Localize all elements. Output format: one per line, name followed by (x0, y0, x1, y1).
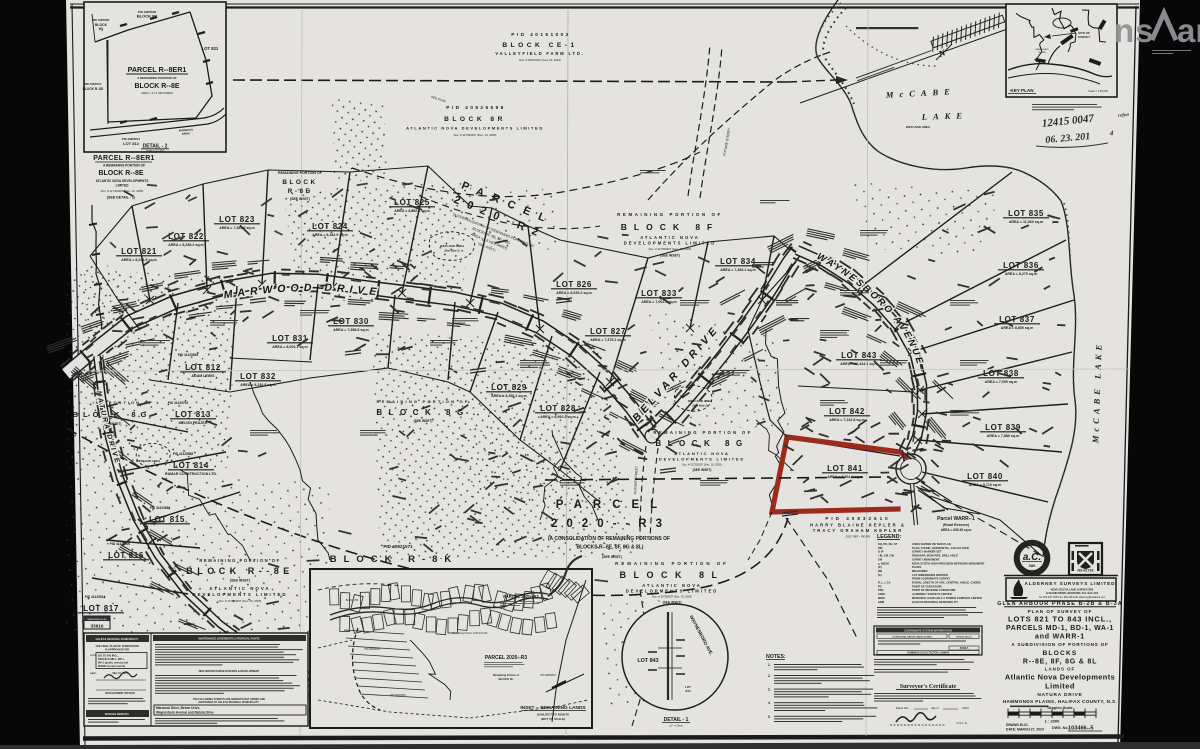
svg-text:PRC: PRC (878, 588, 884, 592)
svg-text:(See Note 2): (See Note 2) (693, 404, 708, 408)
svg-text:1.: 1. (768, 663, 771, 667)
svg-text:(SEE INSET): (SEE INSET) (290, 197, 310, 201)
svg-text:HARRY BLAINE KEPLER &: HARRY BLAINE KEPLER & (810, 523, 906, 528)
svg-text:AREA = 8,710 sq.m: AREA = 8,710 sq.m (969, 483, 1002, 487)
svg-text:EPOCH 2010.0: EPOCH 2010.0 (956, 636, 972, 638)
svg-text:Parcel WARR--1: Parcel WARR--1 (937, 516, 975, 522)
svg-text:AREA = 8,350.1 sq.m: AREA = 8,350.1 sq.m (491, 394, 527, 398)
svg-text:LOT 826: LOT 826 (556, 280, 592, 289)
svg-text:REMAINING PORTION OF: REMAINING PORTION OF (278, 171, 323, 175)
svg-text:(1'' = 10m): (1'' = 10m) (669, 724, 682, 728)
svg-text:WETLAND AREA: WETLAND AREA (136, 459, 160, 463)
svg-text:LOT 823: LOT 823 (219, 215, 255, 224)
svg-text:NEW WATERCOURSE BUFFERS & DEVE: NEW WATERCOURSE BUFFERS & DEVELOPMENT (199, 670, 260, 673)
svg-text:BLOCK R--8E: BLOCK R--8E (134, 83, 179, 90)
svg-text:Doc. # 117350297 (Dec. 19, 200: Doc. # 117350297 (Dec. 19, 2005) (652, 595, 692, 599)
svg-text:DATE:: DATE: (90, 672, 97, 675)
svg-text:ar: ar (1177, 12, 1200, 49)
svg-text:(See Note 2): (See Note 2) (445, 249, 460, 253)
svg-text:33616: 33616 (91, 624, 104, 629)
svg-text:△ NSCM: △ NSCM (877, 561, 889, 565)
svg-text:PID 40821571: PID 40821571 (383, 544, 413, 549)
svg-text:PID 41425702: PID 41425702 (168, 401, 189, 405)
svg-text:LANDS OF: LANDS OF (1045, 667, 1075, 672)
svg-text:NOVA SCOTIA LAND SURVEYORS: NOVA SCOTIA LAND SURVEYORS (1051, 588, 1094, 592)
svg-text:(SEE INSET): (SEE INSET) (693, 468, 712, 472)
svg-text:(SEE INSET): (SEE INSET) (414, 419, 433, 423)
svg-text:LOT 841: LOT 841 (827, 464, 863, 473)
svg-text:PID 41425914: PID 41425914 (85, 595, 106, 599)
svg-text:Marwood Drive, Belvar Drive,: Marwood Drive, Belvar Drive, (156, 706, 200, 710)
svg-text:SUBDIVISION FILE NO: SUBDIVISION FILE NO (87, 619, 107, 621)
svg-text:SURVEY: SURVEY (1078, 35, 1090, 39)
svg-text:AREA = 8,248.5 sq.m: AREA = 8,248.5 sq.m (121, 258, 157, 262)
svg-text:A SUBDIVISION OF PORTIONS: A SUBDIVISION OF PORTIONS OF (1011, 642, 1108, 647)
svg-text:ALDERNEY SURVEYS LIMITED: ALDERNEY SURVEYS LIMITED (1025, 581, 1116, 586)
svg-text:PARCEL R--8ER1: PARCEL R--8ER1 (128, 65, 187, 74)
svg-text:Surveyor's Certificate: Surveyor's Certificate (900, 684, 957, 690)
svg-text:RADIAL LENGTH OF ARC, CENTRAL: RADIAL LENGTH OF ARC, CENTRAL ANGLE, CHO… (912, 581, 981, 585)
svg-text:(SEE INSET): (SEE INSET) (602, 555, 622, 559)
svg-text:PLANS: PLANS (912, 565, 921, 569)
svg-text:SIGNAGE REMOVAL: SIGNAGE REMOVAL (105, 713, 130, 716)
svg-text:IRON BAR, IRON PIPE, DRILL HOL: IRON BAR, IRON PIPE, DRILL HOLE (912, 554, 958, 558)
svg-text:LOT 827: LOT 827 (590, 327, 626, 336)
svg-text:LOT 814: LOT 814 (173, 461, 209, 470)
svg-text:PC: PC (878, 584, 882, 588)
svg-text:Scale = 1:50,000: Scale = 1:50,000 (1088, 89, 1108, 93)
svg-text:PID 41425694: PID 41425694 (178, 353, 199, 357)
svg-text:PID 40161002: PID 40161002 (511, 32, 570, 38)
svg-text:LOT 821: LOT 821 (121, 247, 157, 256)
svg-text:(C): (C) (878, 573, 882, 577)
svg-text:DATE: MARCH 27, 2024: DATE: MARCH 27, 2024 (1006, 728, 1044, 732)
svg-text:AREA = 11,060 sq.m: AREA = 11,060 sq.m (1009, 220, 1043, 224)
svg-text:ADAM LEWIS: ADAM LEWIS (191, 374, 215, 378)
svg-text:AREA = 8,392.1 sq.m: AREA = 8,392.1 sq.m (394, 209, 430, 213)
svg-text:AREA = 8,850 sq.m: AREA = 8,850 sq.m (1001, 326, 1034, 330)
svg-text:LOT 821: LOT 821 (202, 46, 219, 51)
svg-text:LOT DIMENSIONS DERIVED: LOT DIMENSIONS DERIVED (912, 573, 948, 577)
svg-text:PARCELS MD-1, BD-1, WA-1: PARCELS MD-1, BD-1, WA-1 (1006, 625, 1114, 632)
svg-text:AREA = 7,375.1 sq.m: AREA = 7,375.1 sq.m (590, 338, 626, 342)
svg-text:(A CONSOLIDATION OF REMAINING: (A CONSOLIDATION OF REMAINING PORTIONS O… (548, 536, 670, 542)
svg-text:LOT 829: LOT 829 (491, 383, 527, 392)
svg-text:ATLANTIC NOVA: ATLANTIC NOVA (640, 235, 700, 240)
svg-text:SQ, PK, DH, ST: SQ, PK, DH, ST (878, 542, 898, 546)
svg-text:R, L, I, Ch: R, L, I, Ch (878, 581, 891, 585)
svg-text:REMAINING PORTION OF: REMAINING PORTION OF (653, 430, 752, 435)
svg-text:Dated this: Dated this (896, 706, 909, 710)
svg-text:PARCEL: PARCEL (556, 499, 668, 511)
svg-text:BLOCK 8G: BLOCK 8G (73, 410, 152, 419)
svg-text:BLOCK 8G: BLOCK 8G (376, 408, 469, 417)
svg-text:SURVEY MARKER SET: SURVEY MARKER SET (912, 550, 942, 554)
svg-text:Doc. # 117350297 (Dec. 19, 200: Doc. # 117350297 (Dec. 19, 2005) (219, 599, 262, 603)
svg-text:Doc. # 117350297 (Dec. 19, 200: Doc. # 117350297 (Dec. 19, 2005) (101, 189, 144, 193)
svg-text:AREA = 630.36 sq.m: AREA = 630.36 sq.m (941, 528, 972, 532)
svg-text:DEVELOPMENTS LIMITED: DEVELOPMENTS LIMITED (624, 241, 717, 246)
svg-text:PID 41425868: PID 41425868 (173, 452, 194, 456)
svg-text:Waynesboro Avenue and Natura D: Waynesboro Avenue and Natura Drive (156, 710, 214, 714)
svg-text:HAMMONDS PLAINS, HALIFAX COUN: HAMMONDS PLAINS, HALIFAX COUNTY, N.S. (1003, 699, 1117, 704)
svg-text:• IB, CM, CW: • IB, CM, CW (878, 554, 894, 558)
svg-text:AREA = 7,398.8 sq.m: AREA = 7,398.8 sq.m (333, 328, 369, 332)
svg-text:DWG. No.: DWG. No. (1052, 726, 1069, 730)
svg-text:PARCEL R--8ER1: PARCEL R--8ER1 (93, 155, 155, 162)
svg-text:LOT 840: LOT 840 (967, 472, 1003, 481)
svg-text:R-8E: R-8E (288, 188, 313, 195)
svg-text:NATURA DRIVE: NATURA DRIVE (1037, 692, 1082, 698)
svg-text:AREA = 7,483.1 sq.m: AREA = 7,483.1 sq.m (720, 268, 756, 272)
svg-text:LAKE: LAKE (921, 110, 969, 122)
svg-text:BLOCK: BLOCK (282, 179, 317, 186)
svg-text:(Road Reserve): (Road Reserve) (943, 523, 970, 527)
svg-text:REMAINING PORTION OF: REMAINING PORTION OF (377, 399, 470, 404)
svg-text:BLOCK 8R: BLOCK 8R (137, 14, 158, 19)
svg-text:AREA = 8,270 sq.m: AREA = 8,270 sq.m (1005, 272, 1038, 276)
svg-text:380: 380 (1029, 563, 1036, 568)
svg-text:ATLANTIC NOVA: ATLANTIC NOVA (209, 586, 270, 591)
svg-text:FROM COORDINATE SURVEY: FROM COORDINATE SURVEY (912, 577, 950, 581)
svg-text:BLOCK 8F: BLOCK 8F (621, 222, 720, 232)
svg-text:PARCEL 2020--R2: PARCEL 2020--R2 (503, 594, 539, 599)
svg-text:LOT 832: LOT 832 (240, 372, 276, 381)
svg-text:BLOCK 8R: BLOCK 8R (444, 116, 506, 123)
svg-text:WETLAND AREA: WETLAND AREA (440, 244, 464, 248)
svg-text:BLOCK 8G: BLOCK 8G (655, 439, 748, 448)
svg-text:4.: 4. (768, 701, 771, 705)
svg-text:Doc. # 117350297 (Dec. 19, 200: Doc. # 117350297 (Dec. 19, 2005) (649, 247, 692, 251)
svg-text:PID 40820000: PID 40820000 (364, 648, 380, 651)
svg-text:(M): (M) (878, 569, 882, 573)
svg-text:(SEE INSET): (SEE INSET) (230, 579, 250, 583)
svg-text:LOTS 821 TO 843 INCL.,: LOTS 821 TO 843 INCL., (1008, 615, 1112, 624)
svg-text:HALIFAX REGIONAL MUNICIPALITY: HALIFAX REGIONAL MUNICIPALITY (96, 638, 139, 641)
svg-text:HAMMONDS: HAMMONDS (1035, 48, 1049, 51)
svg-text:WETLAND AREA: WETLAND AREA (688, 399, 712, 403)
svg-text:AREA = 8,182.9 sq.m: AREA = 8,182.9 sq.m (312, 233, 348, 237)
svg-text:AREA = 7,002.4 sq.m: AREA = 7,002.4 sq.m (641, 300, 677, 304)
svg-text:LOT 837: LOT 837 (999, 315, 1035, 324)
svg-text:ATLANTIC NOVA: ATLANTIC NOVA (674, 451, 729, 456)
svg-text:5.: 5. (768, 715, 771, 719)
svg-text:ZONE 5: ZONE 5 (960, 647, 969, 650)
svg-text:MELVIN FRAZER: MELVIN FRAZER (179, 421, 208, 425)
svg-text:LOT 833: LOT 833 (641, 289, 677, 298)
svg-text:and WARR-1: and WARR-1 (1035, 634, 1085, 641)
svg-text:N.S.L.S.: N.S.L.S. (956, 721, 967, 725)
svg-text:SURVEY MONUMENT: SURVEY MONUMENT (912, 557, 940, 561)
svg-text:ANDL: ANDL (878, 592, 886, 596)
svg-text:AREA = 7,142.8 sq.m: AREA = 7,142.8 sq.m (829, 418, 865, 422)
svg-text:Doc. # 90322034 (June 24, 2019: Doc. # 90322034 (June 24, 2019) (519, 58, 561, 62)
svg-text:BLOCKS: BLOCKS (1042, 650, 1077, 657)
svg-text:COORDINATE SYSTEM INFORMATION: COORDINATE SYSTEM INFORMATION (904, 629, 952, 633)
svg-text:2.: 2. (768, 674, 771, 678)
svg-text:AREA = 8,230.8 sq.m: AREA = 8,230.8 sq.m (240, 383, 276, 387)
svg-text:12 BASIN DRIVE, BEDFORD, N.S.: 12 BASIN DRIVE, BEDFORD, N.S. B4A 1G2 (1046, 591, 1099, 595)
svg-text:WARR-1 (road reserve): WARR-1 (road reserve) (98, 665, 125, 668)
svg-text:HRM: HRM (878, 600, 885, 604)
svg-text:(NOT TO SCALE): (NOT TO SCALE) (541, 717, 565, 721)
svg-text:8Q: 8Q (99, 27, 104, 31)
svg-text:844: 844 (685, 689, 690, 693)
svg-text:MUNICIPAL EASE HALF A POWER CO: MUNICIPAL EASE HALF A POWER COMPANY LIMI… (912, 596, 982, 600)
svg-text:LOT 834: LOT 834 (720, 257, 756, 266)
svg-text:BLOCK CE-1: BLOCK CE-1 (502, 42, 577, 49)
svg-text:LOT 835: LOT 835 (1008, 209, 1044, 218)
svg-text:ATLANTIC NOVA: ATLANTIC NOVA (642, 583, 702, 588)
svg-text:DRIVE: DRIVE (182, 131, 190, 136)
svg-text:ALDERNEY SURVEYS LIMITED: ALDERNEY SURVEYS LIMITED (912, 592, 952, 596)
svg-text:AREA = 16,424.1 sq.m: AREA = 16,424.1 sq.m (840, 362, 878, 366)
svg-text:PID 40832610: PID 40832610 (825, 516, 890, 521)
svg-text:BLOCK 8W: BLOCK 8W (346, 599, 359, 602)
svg-text:A REMAINING PORTION OF: A REMAINING PORTION OF (137, 76, 177, 80)
svg-text:KEY PLAN: KEY PLAN (1010, 88, 1034, 93)
svg-text:IS APPROVED FOR: IS APPROVED FOR (105, 648, 129, 652)
svg-text:AREA = 4.71 HECTARES: AREA = 4.71 HECTARES (141, 91, 173, 95)
svg-text:2020--R3: 2020--R3 (551, 518, 671, 530)
svg-text:BLOCK 8L: BLOCK 8L (620, 570, 725, 580)
svg-text:LOT 812: LOT 812 (123, 141, 140, 146)
svg-text:DEVELOPMENTS LIMITED: DEVELOPMENTS LIMITED (626, 589, 719, 594)
svg-text:(P): (P) (878, 565, 882, 569)
svg-text:LINES SHOWN ON THIS PLAN: LINES SHOWN ON THIS PLAN (912, 542, 951, 546)
svg-text:Atlantic Nova Developments: Atlantic Nova Developments (1005, 673, 1115, 682)
svg-text:DEVELOPMENTS LIMITED: DEVELOPMENTS LIMITED (659, 457, 745, 462)
svg-text:POINT OF CURVATURE: POINT OF CURVATURE (912, 584, 942, 588)
svg-text:PID 40825580: PID 40825580 (93, 18, 110, 22)
svg-text:LOT 828: LOT 828 (540, 404, 576, 413)
svg-text:ns: ns (1114, 12, 1155, 49)
svg-text:BLOCK R--8D: BLOCK R--8D (83, 87, 104, 91)
svg-text:HORIZONTAL DATUM: NAD83 (CSRS): HORIZONTAL DATUM: NAD83 (CSRS) (892, 635, 931, 638)
svg-text:WETLAND AREA: WETLAND AREA (906, 125, 930, 129)
svg-text:AREA = 8,992.2 sq.m: AREA = 8,992.2 sq.m (540, 415, 576, 419)
svg-text:POINT OF REVERSE CURVATURE: POINT OF REVERSE CURVATURE (912, 588, 956, 592)
svg-text:day of: day of (931, 706, 939, 710)
svg-text:BLOCK R-8K: BLOCK R-8K (330, 554, 459, 565)
svg-text:LOT 836: LOT 836 (1003, 261, 1039, 270)
svg-text:HALIFAX REGIONAL MUNICIPALITY: HALIFAX REGIONAL MUNICIPALITY (912, 600, 958, 604)
svg-text:PID 40828394: PID 40828394 (390, 694, 406, 697)
svg-text:BLOCK R--8E: BLOCK R--8E (186, 566, 294, 576)
svg-text:LOT 817: LOT 817 (83, 604, 119, 613)
svg-text:MDW: MDW (878, 596, 885, 600)
svg-text:MAINTENANCE AGREEMENTS & PROPO: MAINTENANCE AGREEMENTS & PROPOSAL POINTS (198, 638, 260, 641)
svg-text:REMAINING PORTION OF: REMAINING PORTION OF (617, 212, 723, 217)
svg-text:LEGEND:: LEGEND: (877, 534, 901, 540)
svg-text:BLOCKS R--8E, 8F, 8G & 8L): BLOCKS R--8E, 8F, 8G & 8L) (577, 545, 644, 551)
svg-text:NOVA SCOTIA HIGH PRECISION NET: NOVA SCOTIA HIGH PRECISION NETWORK MONUM… (912, 561, 985, 565)
svg-text:BLOCK 8L: BLOCK 8L (499, 677, 514, 681)
svg-text:Doc. # 117350297 (Dec. 19, 200: Doc. # 117350297 (Dec. 19, 2005) (682, 463, 722, 467)
svg-text:DRAWN M.JC.: DRAWN M.JC. (1006, 723, 1029, 727)
svg-text:AREA = 7,380.8 sq.m: AREA = 7,380.8 sq.m (219, 226, 255, 230)
svg-text:Graphic Scale: Graphic Scale (1047, 706, 1072, 710)
svg-text:R--8E, 8F, 8G & 8L: R--8E, 8F, 8G & 8L (1023, 659, 1097, 666)
svg-text:PLAN OF SURVEY OF: PLAN OF SURVEY OF (1028, 609, 1093, 614)
svg-text:MAINTAINED BY HALIFAX REGIONAL: MAINTAINED BY HALIFAX REGIONAL MUNICIPAL… (198, 701, 259, 704)
svg-text:LOT 843: LOT 843 (841, 351, 877, 360)
svg-text:LOT 824: LOT 824 (312, 222, 348, 231)
svg-text:Remaining Portion of BLOCK 8G: Remaining Portion of BLOCK 8G (453, 632, 488, 635)
svg-text:RAMAR CONSTRUCTION LTD.: RAMAR CONSTRUCTION LTD. (165, 472, 217, 476)
svg-text:VALLEYFIELD FARM LTD.: VALLEYFIELD FARM LTD. (495, 51, 584, 56)
svg-text:Limited: Limited (1045, 682, 1075, 691)
svg-text:(SUBJECT TO RIGHTS: (SUBJECT TO RIGHTS (537, 713, 569, 717)
svg-text:LOT 842: LOT 842 (829, 407, 865, 416)
svg-text:TRACY GRAHAM KEPLER: TRACY GRAHAM KEPLER (813, 528, 904, 533)
svg-text:AREA = 8,639.2 sq.m: AREA = 8,639.2 sq.m (556, 291, 592, 295)
svg-text:PID 40825598: PID 40825598 (446, 105, 505, 111)
svg-text:PLAN, FOUND, HORIZONTAL, CALCU: PLAN, FOUND, HORIZONTAL, CALCULATED (912, 546, 969, 550)
svg-text:DEVELOPMENTS LIMITED: DEVELOPMENTS LIMITED (192, 592, 287, 597)
svg-text:O IP: O IP (878, 550, 884, 554)
svg-text:LIMITED: LIMITED (116, 184, 129, 188)
svg-text:A REMAINING PORTION OF: A REMAINING PORTION OF (103, 164, 145, 168)
svg-text:THE FINAL PLAN OF SUBDIVISION: THE FINAL PLAN OF SUBDIVISION (95, 644, 138, 648)
svg-text:AREA = 7,000 sq.m: AREA = 7,000 sq.m (985, 380, 1018, 384)
svg-text:REMAINING PORTION OF: REMAINING PORTION OF (615, 561, 729, 566)
svg-text:GLEN ARBOUR PHASE B-2B & B-: GLEN ARBOUR PHASE B-2B & B-3A (997, 601, 1122, 607)
svg-text:COMBINED SCALE FACTOR: 0.99994: COMBINED SCALE FACTOR: 0.999943 (907, 651, 950, 654)
svg-text:LOT 843: LOT 843 (637, 658, 658, 664)
svg-text:DOC REF - PID RE: DOC REF - PID RE (846, 535, 871, 539)
svg-text:AREA = 7,880 sq.m: AREA = 7,880 sq.m (987, 434, 1020, 438)
svg-text:PLAINS: PLAINS (1038, 51, 1046, 54)
svg-text:BLOCK R--8E: BLOCK R--8E (98, 170, 143, 177)
svg-text:(SEE INSET): (SEE INSET) (660, 254, 680, 258)
svg-text:3.: 3. (768, 688, 771, 692)
svg-text:ATLANTIC NOVA DEVELOPMENTS LIM: ATLANTIC NOVA DEVELOPMENTS LIMITED (406, 126, 544, 131)
svg-text:REMAINING PORTION OF: REMAINING PORTION OF (199, 558, 280, 563)
svg-text:Tel: 902.445.7328 Fax: 902.4: Tel: 902.445.7328 Fax: 902.445.4231 alde… (1039, 596, 1106, 599)
svg-text:PID 40825572: PID 40825572 (85, 82, 102, 86)
svg-text:AREA = 8,003.1 sq.m: AREA = 8,003.1 sq.m (272, 345, 308, 349)
svg-text:ATLANTIC NOVA DEVELOPMENTS: ATLANTIC NOVA DEVELOPMENTS (96, 179, 149, 183)
svg-text:DEVELOPMENT OFFICER: DEVELOPMENT OFFICER (105, 692, 135, 695)
svg-text:, 2024.: , 2024. (961, 706, 970, 710)
svg-text:1 : 2000: 1 : 2000 (1045, 719, 1060, 724)
svg-text:PID 40826818: PID 40826818 (540, 674, 556, 677)
svg-text:PID: PID (878, 546, 883, 550)
svg-text:LOT 813: LOT 813 (175, 410, 211, 419)
svg-text:Doc. # 117350297 (Dec. 19, 200: Doc. # 117350297 (Dec. 19, 2005) (454, 133, 497, 137)
svg-text:AREA = 8,338.2 sq.m: AREA = 8,338.2 sq.m (168, 243, 204, 247)
svg-text:NS 61726: NS 61726 (1078, 569, 1094, 573)
svg-text:PARCEL 2020--R3: PARCEL 2020--R3 (485, 655, 528, 661)
svg-text:MEASURED: MEASURED (912, 569, 927, 573)
svg-text:Scale = 1:2,500: Scale = 1:2,500 (146, 149, 165, 153)
